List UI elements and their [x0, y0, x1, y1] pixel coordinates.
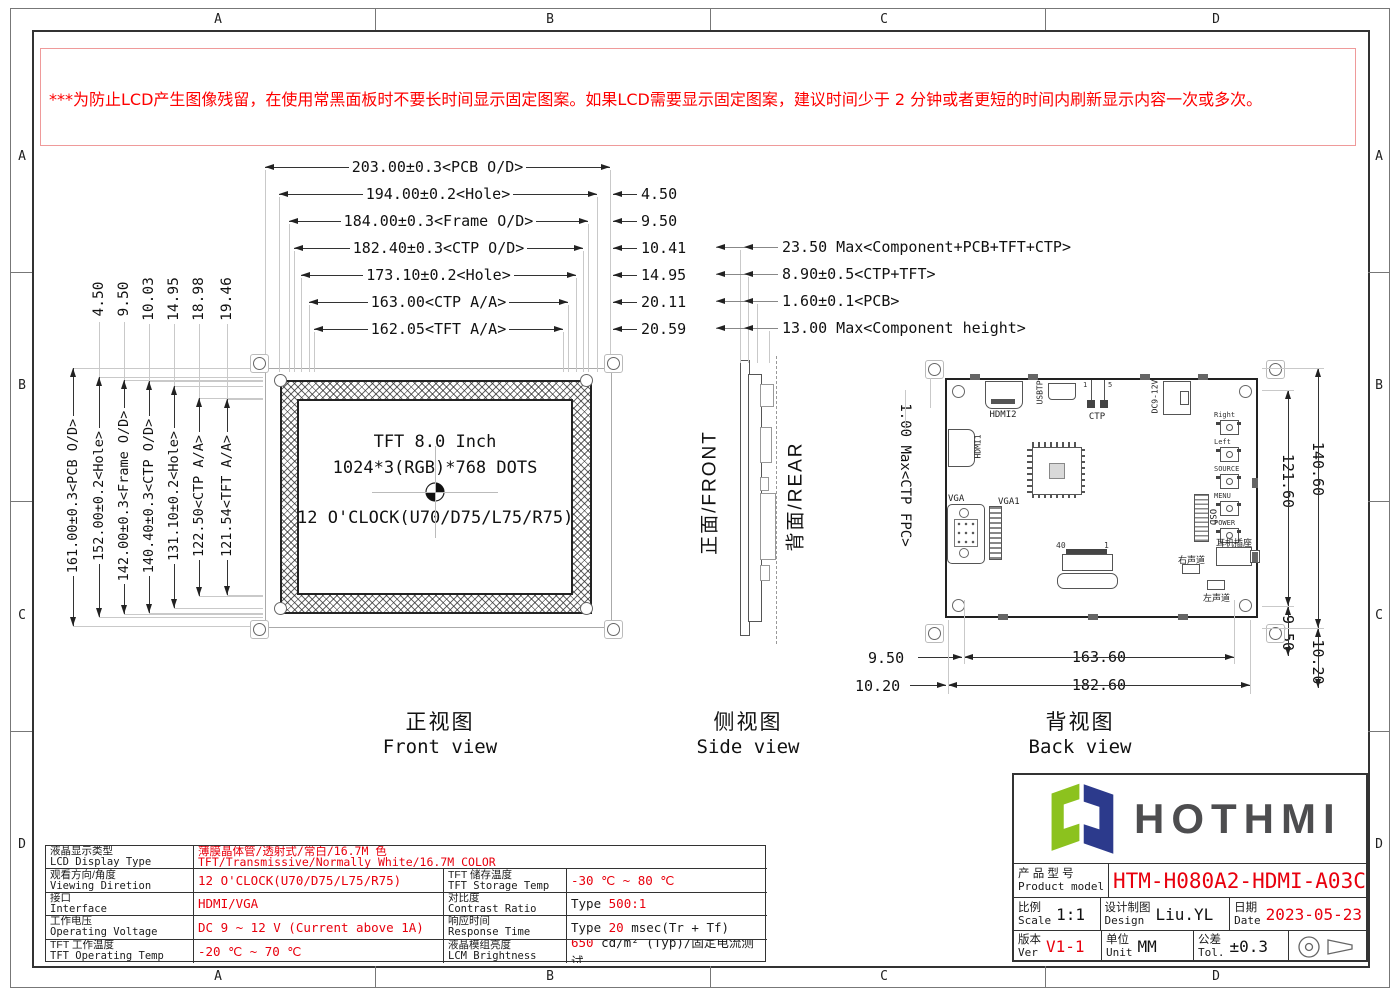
dimension-line: [1045, 966, 1046, 988]
dim-arrow: [953, 654, 962, 660]
spec-value-response-time: Type 20 msec(Tr + Tf): [567, 916, 767, 939]
fpc-pin40-label: 40: [1056, 541, 1066, 550]
grid-row-label: A: [1370, 149, 1388, 164]
dimension-line: [1262, 606, 1294, 607]
title-block: HOTHMI 产 品 型 号 Product model HTM-H080A2-…: [1012, 773, 1368, 962]
mounting-hole: [253, 623, 266, 636]
side-component: [760, 565, 770, 581]
dim-label: 4.50: [641, 185, 677, 203]
dimension-line: [99, 617, 263, 618]
dim-label-text: 161.00±0.3<PCB O/D>: [65, 416, 81, 576]
dim-label: 162.05<TFT A/A>: [279, 320, 599, 338]
button-label: MENU: [1214, 492, 1244, 500]
spec-value-storage-temp: -30 ℃ ~ 80 ℃: [567, 869, 767, 892]
mounting-hole: [1239, 599, 1252, 612]
solder-pad: [1178, 614, 1188, 620]
button-label: POWER: [1214, 519, 1244, 527]
side-view-title-en: Side view: [668, 736, 828, 758]
design-label: 设计制图 Design: [1105, 902, 1151, 927]
grid-row-label: A: [13, 149, 31, 164]
dim-arrow: [1241, 682, 1250, 688]
version-label: 版本 Ver: [1018, 934, 1041, 959]
fpc-connector-body: [1062, 554, 1113, 571]
spec-label-interface: 接口 Interface: [46, 893, 194, 916]
dimension-line: [375, 8, 376, 30]
dim-label-text: 182.40±0.3<CTP O/D>: [350, 239, 528, 257]
ctp-pin1-label: 1: [1083, 381, 1087, 389]
mounting-hole: [607, 357, 620, 370]
spec-value-viewing-direction: 12 O'CLOCK(U70/D75/L75/R75): [194, 869, 444, 892]
image-retention-warning: ***为防止LCD产生图像残留，在使用常黑面板时不要长时间显示固定图案。如果LC…: [40, 48, 1356, 146]
side-dim-component: 13.00 Max<Component height>: [782, 319, 1026, 337]
dim-label-text: 203.00±0.3<PCB O/D>: [349, 158, 527, 176]
dim-label: 10.41: [641, 239, 686, 257]
grid-row-label: D: [13, 837, 31, 852]
dim-label-text: 9.50: [116, 279, 132, 320]
dimension-line: [563, 332, 564, 372]
dim-label-text: 152.00±0.2<Hole>: [91, 428, 107, 564]
date-label-cn: 日期: [1234, 902, 1261, 915]
dim-label: 9.50: [641, 212, 677, 230]
version-label-en: Ver: [1018, 947, 1041, 959]
dim-label: 10.03: [141, 189, 157, 409]
product-model-row: 产 品 型 号 Product model HTM-H080A2-HDMI-A0…: [1014, 864, 1366, 898]
spec-value-segment: 500:1: [609, 896, 647, 911]
product-label-en: Product model: [1018, 881, 1104, 893]
scale-cell: 比例 Scale 1:1: [1014, 898, 1101, 930]
mounting-hole: [1269, 363, 1282, 376]
side-centerline: [776, 356, 777, 644]
warning-line-1: ***为防止LCD产生图像残留，在使用常黑面板时不要长时间显示固定图案。如果LC…: [49, 88, 1347, 112]
scale-label: 比例 Scale: [1018, 902, 1051, 927]
dimension-line: [1318, 368, 1319, 628]
dimension-line: [1262, 390, 1294, 391]
spec-value-segment: cd/m² (Typ)/固定电流测试: [571, 940, 754, 963]
mounting-hole: [580, 602, 593, 615]
spec-label-en: TFT Operating Temp: [50, 951, 189, 962]
dim-label: 131.10±0.2<Hole>: [166, 386, 182, 606]
dim-label: 14.95: [166, 189, 182, 409]
solder-pad: [1252, 552, 1258, 562]
dim-arrow: [1285, 597, 1291, 606]
dim-label-text: 122.50<CTP A/A>: [191, 432, 207, 560]
spec-label-en: Contrast Ratio: [448, 904, 562, 915]
hdmi1-connector: [948, 429, 975, 467]
tolerance-label: 公差 Tol.: [1198, 934, 1225, 959]
dim-label-text: 10.03: [141, 274, 157, 324]
dimension-line: [1262, 368, 1324, 369]
dim-arrow: [948, 682, 957, 688]
spec-value-operating-temp: -20 ℃ ~ 70 ℃: [194, 940, 444, 963]
side-dim-ctp-tft: 8.90±0.5<CTP+TFT>: [782, 265, 936, 283]
mounting-hole: [928, 627, 941, 640]
date-cell: 日期 Date 2023-05-23: [1230, 898, 1366, 930]
dimension-line: [964, 600, 965, 664]
dim-arrow: [1315, 628, 1321, 637]
grid-row-label: C: [13, 608, 31, 623]
dimension-line: [710, 8, 711, 30]
grid-col-label: A: [208, 969, 228, 984]
dim-arrow: [96, 608, 102, 617]
dim-label: 9.50: [116, 189, 132, 409]
dimension-line: [948, 620, 949, 694]
button-label: Left: [1214, 438, 1244, 446]
grid-row-label: B: [13, 378, 31, 393]
dimension-line: [375, 966, 376, 988]
dim-label: 121.54<TFT A/A>: [219, 386, 235, 606]
dim-arrow: [70, 617, 76, 626]
dimension-line: [10, 501, 32, 502]
dim-arrow: [716, 325, 725, 331]
mounting-hole: [253, 357, 266, 370]
dim-left-edge2: 10.20: [855, 677, 900, 695]
dim-label-text: 4.50: [91, 279, 107, 320]
tolerance-value: ±0.3: [1230, 937, 1269, 956]
fpc-connector-latch: [1057, 573, 1118, 589]
dimension-line: [1262, 628, 1324, 629]
spec-label-contrast: 对比度 Contrast Ratio: [444, 893, 567, 916]
grid-col-label: B: [540, 969, 560, 984]
left-channel-label: 左声道: [1203, 591, 1230, 604]
switch-plunger: [1226, 451, 1233, 458]
spec-label-voltage: 工作电压 Operating Voltage: [46, 916, 194, 939]
grid-col-label: A: [208, 12, 228, 27]
spec-label-display-type: 液晶显示类型 LCD Display Type: [46, 846, 194, 869]
spec-value-voltage: DC 9 ~ 12 V (Current above 1A): [194, 916, 444, 939]
dim-label: 152.00±0.2<Hole>: [91, 386, 107, 606]
spec-label-response-time: 响应时间 Response Time: [444, 916, 567, 939]
ctp-wire: [1091, 380, 1092, 400]
mounting-hole: [580, 374, 593, 387]
dim-arrow: [613, 326, 622, 332]
dim-arrow: [613, 272, 622, 278]
dimension-line: [610, 170, 611, 372]
scale-label-cn: 比例: [1018, 902, 1051, 915]
dim-label: 14.95: [641, 266, 686, 284]
dim-label-text: 19.46: [219, 274, 235, 324]
switch-plunger: [1226, 424, 1233, 431]
grid-col-label: B: [540, 12, 560, 27]
dim-arrow: [1285, 390, 1291, 399]
dim-arrow: [121, 605, 127, 614]
solder-pad: [970, 374, 980, 380]
spec-value-contrast: Type 500:1: [567, 893, 767, 916]
vga1-header: [989, 506, 1002, 560]
spec-value-interface: HDMI/VGA: [194, 893, 444, 916]
side-rear-label: 背面/REAR: [781, 422, 808, 572]
product-model-value-cell: HTM-H080A2-HDMI-A03C: [1109, 864, 1370, 897]
spec-label-viewing-direction: 观看方向/角度 Viewing Diretion: [46, 869, 194, 892]
dim-label: 20.11: [641, 293, 686, 311]
grid-col-label: D: [1206, 969, 1226, 984]
dim-label: 122.50<CTP A/A>: [191, 386, 207, 606]
dim-arrow: [613, 245, 622, 251]
dim-label-text: 142.00±0.3<Frame O/D>: [116, 408, 132, 585]
dim-label: 161.00±0.3<PCB O/D>: [65, 386, 81, 606]
switch-leg: [1237, 503, 1241, 506]
headphone-jack: [1216, 547, 1252, 566]
side-view-title-cn: 侧视图: [668, 706, 828, 736]
spec-value-segment: Type: [571, 896, 609, 911]
spec-label-operating-temp: TFT 工作温度 TFT Operating Temp: [46, 940, 194, 963]
front-view-title-en: Front view: [360, 736, 520, 758]
tolerance-cell: 公差 Tol. ±0.3: [1194, 931, 1289, 962]
dim-arrow: [1315, 368, 1321, 377]
spec-label-cn: 观看方向/角度: [50, 870, 189, 881]
brand-logo: HOTHMI: [1014, 775, 1366, 864]
side-dim-total: 23.50 Max<Component+PCB+TFT+CTP>: [782, 238, 1071, 256]
dim-arrow: [964, 654, 973, 660]
mounting-hole: [607, 623, 620, 636]
dim-label-text: 162.05<TFT A/A>: [368, 320, 509, 338]
dim-label-text: 140.40±0.3<CTP O/D>: [141, 416, 157, 576]
spec-value-display-type: 薄膜晶体管/透射式/常白/16.7M 色 TFT/Transmissive/No…: [194, 846, 767, 869]
hdmi1-label: HDMI1: [974, 425, 983, 469]
dim-arrow: [937, 682, 946, 688]
dim-label: 19.46: [219, 189, 235, 409]
ctp-label: CTP: [1082, 412, 1112, 422]
dimension-line: [568, 305, 569, 372]
vga-label: VGA: [948, 494, 964, 504]
unit-value: MM: [1138, 937, 1157, 956]
ver-unit-tol-row: 版本 Ver V1-1 单位 Unit MM 公差 Tol. ±0.3: [1014, 931, 1366, 962]
ctp-pad: [1087, 400, 1095, 408]
grid-row-label: B: [1370, 378, 1388, 393]
dim-label: 173.10±0.2<Hole>: [279, 266, 599, 284]
side-dim-pcb: 1.60±0.1<PCB>: [782, 292, 899, 310]
dim-label-text: 121.54<TFT A/A>: [219, 432, 235, 560]
dimension-line: [174, 608, 263, 609]
dimension-line: [948, 685, 1250, 686]
brand-wordmark: HOTHMI: [1134, 795, 1342, 843]
dc-label: DC9-12V: [1151, 373, 1160, 421]
dim-label-text: 173.10±0.2<Hole>: [363, 266, 514, 284]
grid-col-label: C: [874, 969, 894, 984]
projection-symbol-cell: [1289, 931, 1366, 962]
dimension-line: [265, 170, 266, 372]
side-front-label: 正面/FRONT: [695, 418, 722, 568]
spec-label-en: LCD Display Type: [50, 857, 189, 868]
side-component: [760, 477, 769, 491]
design-label-en: Design: [1105, 915, 1151, 927]
switch-leg: [1216, 449, 1220, 452]
unit-label-en: Unit: [1106, 947, 1133, 959]
dim-arrow: [744, 298, 753, 304]
usb-touch-connector: [1048, 383, 1076, 400]
dimension-line: [1368, 731, 1390, 732]
product-model-value: HTM-H080A2-HDMI-A03C: [1113, 869, 1366, 893]
dimension-line: [149, 613, 263, 614]
dim-arrow: [1225, 654, 1234, 660]
dim-arrow: [613, 299, 622, 305]
spec-label-en: Response Time: [448, 927, 562, 938]
solder-pad: [998, 614, 1008, 620]
dim-label: 20.59: [641, 320, 686, 338]
version-value: V1-1: [1046, 937, 1085, 956]
dim-arrow: [613, 218, 622, 224]
grid-row-label: C: [1370, 608, 1388, 623]
ctp-wire: [1104, 380, 1105, 400]
dim-label-text: 184.00±0.3<Frame O/D>: [341, 212, 537, 230]
spec-label-en: Operating Voltage: [50, 927, 189, 938]
grid-col-label: C: [874, 12, 894, 27]
design-label-cn: 设计制图: [1105, 902, 1151, 915]
dimension-line: [124, 614, 263, 615]
switch-leg: [1237, 530, 1241, 533]
dimension-line: [769, 331, 770, 363]
dim-arrow: [70, 368, 76, 377]
dim-label: 194.00±0.2<Hole>: [278, 185, 598, 203]
dim-arrow: [613, 191, 622, 197]
unit-cell: 单位 Unit MM: [1102, 931, 1194, 962]
dimension-line: [1234, 600, 1235, 664]
dim-arrow: [716, 244, 725, 250]
spec-value-line: TFT/Transmissive/Normally White/16.7M CO…: [198, 857, 763, 869]
dimension-line: [314, 332, 315, 372]
switch-leg: [1216, 476, 1220, 479]
dimension-line: [710, 966, 711, 988]
mounting-hole: [1239, 385, 1252, 398]
dim-arrow: [1285, 606, 1291, 615]
spec-value-segment: 650: [571, 940, 594, 951]
dimension-line: [757, 304, 758, 363]
vga-pin-field: [954, 519, 978, 547]
spec-table: 液晶显示类型 LCD Display Type 薄膜晶体管/透射式/常白/16.…: [45, 845, 766, 962]
button-label: SOURCE: [1214, 465, 1244, 473]
dim-arrow: [744, 244, 753, 250]
dim-arrow: [1285, 647, 1291, 656]
dimension-line: [1368, 501, 1390, 502]
dim-label: 18.98: [191, 189, 207, 409]
dim-arrow: [1315, 619, 1321, 628]
spec-label-en: TFT Storage Temp: [448, 881, 562, 892]
tolerance-label-en: Tol.: [1198, 947, 1225, 959]
osd-label: OSD: [1207, 497, 1217, 537]
side-component: [760, 384, 774, 407]
dim-label: 4.50: [91, 189, 107, 409]
hdmi2-pins: [991, 399, 1015, 404]
solder-pad: [1140, 374, 1150, 380]
spec-value-segment: Type: [571, 920, 609, 935]
scale-value: 1:1: [1056, 905, 1085, 924]
dim-label-text: 18.98: [191, 274, 207, 324]
mounting-hole: [274, 374, 287, 387]
spec-value-segment: HDMI/VGA: [198, 896, 258, 911]
left-channel-connector: [1207, 580, 1225, 590]
dim-label: 182.40±0.3<CTP O/D>: [279, 239, 599, 257]
switch-leg: [1237, 449, 1241, 452]
mounting-hole: [274, 602, 287, 615]
grid-row-label: D: [1370, 837, 1388, 852]
scale-design-date-row: 比例 Scale 1:1 设计制图 Design Liu.YL 日期 Date …: [1014, 898, 1366, 931]
dimension-line: [10, 731, 32, 732]
dim-label: 163.00<CTP A/A>: [279, 293, 599, 311]
spec-value-segment: -30 ℃ ~ 80 ℃: [571, 873, 674, 888]
button-label: Right: [1214, 411, 1244, 419]
mounting-hole: [928, 363, 941, 376]
dim-label: 203.00±0.3<PCB O/D>: [278, 158, 598, 176]
switch-leg: [1216, 422, 1220, 425]
spec-label-en: Viewing Diretion: [50, 881, 189, 892]
dim-arrow: [744, 325, 753, 331]
spec-value-segment: 20: [609, 920, 624, 935]
dimension-line: [964, 657, 1234, 658]
dim-arrow: [716, 298, 725, 304]
dimension-line: [930, 378, 931, 408]
solder-pad: [1088, 614, 1098, 620]
spec-value-brightness: 650 cd/m² (Typ)/固定电流测试: [567, 940, 767, 963]
back-view-title-cn: 背视图: [1000, 706, 1160, 736]
side-component: [760, 427, 772, 463]
grid-col-label: D: [1206, 12, 1226, 27]
side-component: [760, 493, 776, 560]
version-cell: 版本 Ver V1-1: [1014, 931, 1102, 962]
vga-screw-hole: [959, 508, 969, 518]
dimension-line: [435, 446, 436, 538]
spec-value-segment: DC 9 ~ 12 V (Current above 1A): [198, 920, 424, 935]
dimension-line: [1045, 8, 1046, 30]
date-label: 日期 Date: [1234, 902, 1261, 927]
dim-arrow: [265, 164, 274, 170]
product-model-label: 产 品 型 号 Product model: [1014, 864, 1109, 897]
dimension-line: [1368, 272, 1390, 273]
dim-arrow: [716, 271, 725, 277]
dim-left-edge: 9.50: [868, 649, 904, 667]
dimension-line: [1288, 390, 1289, 606]
dim-arrow: [1315, 679, 1321, 688]
spec-label-cn: TFT 储存温度: [448, 870, 562, 881]
ctp-pin5-label: 5: [1108, 381, 1112, 389]
dim-label-text: 14.95: [166, 274, 182, 324]
spec-label-en: LCM Brightness: [448, 951, 562, 962]
dimension-line: [748, 277, 749, 363]
dimension-line: [740, 250, 741, 363]
dim-label: 184.00±0.3<Frame O/D>: [279, 212, 599, 230]
dimension-line: [905, 390, 906, 430]
front-view-title-cn: 正视图: [360, 706, 520, 736]
right-channel-connector: [1182, 564, 1200, 574]
dimension-line: [73, 626, 263, 627]
ic-die: [1049, 463, 1065, 479]
date-label-en: Date: [1234, 915, 1261, 927]
third-angle-projection-icon: [1296, 934, 1360, 960]
spec-value-segment: -20 ℃ ~ 70 ℃: [198, 944, 301, 959]
hdmi2-label: HDMI2: [985, 410, 1021, 420]
design-value: Liu.YL: [1156, 905, 1214, 924]
dim-label: 140.40±0.3<CTP O/D>: [141, 386, 157, 606]
spec-value-segment: 12 O'CLOCK(U70/D75/L75/R75): [198, 873, 401, 888]
spec-label-brightness: 液晶模组亮度 LCM Brightness: [444, 940, 567, 963]
ctp-pad: [1100, 400, 1108, 408]
hdmi2-connector: [985, 381, 1023, 409]
switch-plunger: [1226, 478, 1233, 485]
switch-leg: [1237, 422, 1241, 425]
solder-pad: [1252, 478, 1258, 488]
scale-label-en: Scale: [1018, 915, 1051, 927]
solder-pad: [1028, 374, 1038, 380]
mounting-hole: [952, 385, 965, 398]
spec-label-en: Interface: [50, 904, 189, 915]
dimension-line: [1250, 620, 1251, 694]
spec-value-segment: msec(Tr + Tf): [624, 920, 729, 935]
switch-leg: [1237, 476, 1241, 479]
spec-label-storage-temp: TFT 储存温度 TFT Storage Temp: [444, 869, 567, 892]
switch-plunger: [1226, 505, 1233, 512]
dimension-line: [309, 305, 310, 372]
dimension-line: [10, 272, 32, 273]
dim-label: 142.00±0.3<Frame O/D>: [116, 386, 132, 606]
dim-arrow: [601, 164, 610, 170]
